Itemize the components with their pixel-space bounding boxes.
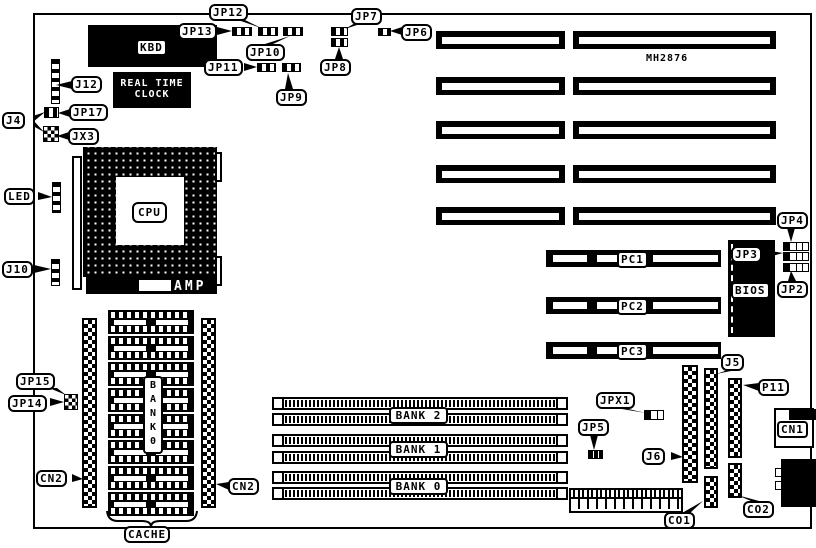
label-jx3: JX3: [68, 128, 99, 145]
cache-brace: [107, 511, 197, 527]
label-jp8: JP8: [320, 59, 351, 76]
label-jp7: JP7: [351, 8, 382, 25]
bank1-label: BANK 1: [389, 441, 448, 458]
bank2-label: BANK 2: [389, 407, 448, 424]
label-jpx1: JPX1: [596, 392, 635, 409]
motherboard-diagram: KBD REAL TIME CLOCK J12 JP17 JX3 J4 LED …: [0, 0, 816, 548]
label-p11: P11: [758, 379, 789, 396]
label-cn2-left: CN2: [36, 470, 67, 487]
label-co2: CO2: [743, 501, 774, 518]
label-jp12: JP12: [209, 4, 248, 21]
pc2-label: PC2: [617, 298, 648, 315]
bios-label: BIOS: [731, 282, 770, 299]
cpu-label: CPU: [132, 202, 167, 223]
leader-lines: [0, 0, 816, 548]
label-jp6: JP6: [401, 24, 432, 41]
label-jp11: JP11: [204, 59, 243, 76]
label-jp4: JP4: [777, 212, 808, 229]
label-jp9: JP9: [276, 89, 307, 106]
label-jp2: JP2: [777, 281, 808, 298]
pc3-label: PC3: [617, 343, 648, 360]
label-led: LED: [4, 188, 35, 205]
label-jp3: JP3: [731, 246, 762, 263]
label-jp17: JP17: [69, 104, 108, 121]
label-jp14: JP14: [8, 395, 47, 412]
cn1-label: CN1: [777, 421, 808, 438]
label-co1: CO1: [664, 512, 695, 529]
pc1-label: PC1: [617, 251, 648, 268]
bank0-label: BANK 0: [389, 478, 448, 495]
label-jp15: JP15: [16, 373, 55, 390]
cache-bank0-vertical-label: B A N K 0: [143, 376, 163, 454]
label-jp13: JP13: [178, 23, 217, 40]
label-cn2-right: CN2: [228, 478, 259, 495]
label-j4: J4: [2, 112, 25, 129]
label-j6: J6: [642, 448, 665, 465]
label-j5: J5: [721, 354, 744, 371]
label-jp5: JP5: [578, 419, 609, 436]
label-jp10: JP10: [246, 44, 285, 61]
label-j10: J10: [2, 261, 33, 278]
label-j12: J12: [71, 76, 102, 93]
kbd-label: KBD: [136, 39, 167, 56]
cache-label: CACHE: [124, 526, 170, 543]
